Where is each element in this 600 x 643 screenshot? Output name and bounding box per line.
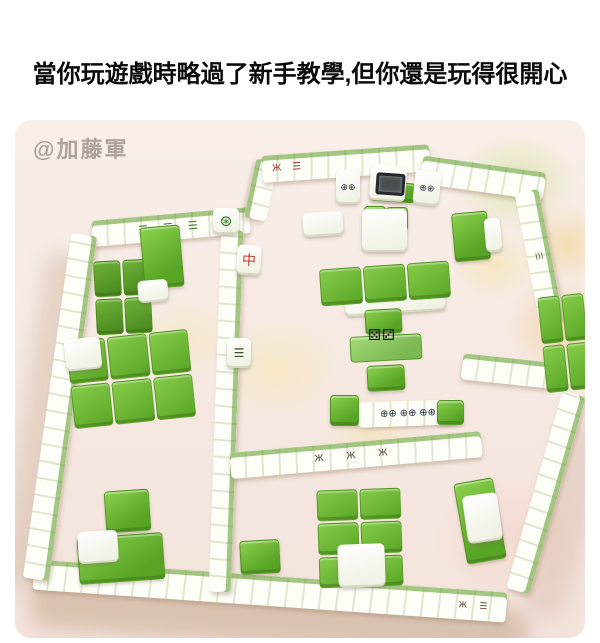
armchair-left-cushion — [137, 279, 169, 304]
watermark: @加藤軍 — [33, 132, 128, 164]
wall-mid-right — [461, 353, 553, 388]
dot-tile-left-icon: ⊕⊕ — [336, 170, 360, 204]
dice-glyphs: ⚄⚂ — [368, 327, 396, 344]
green-tile — [93, 260, 122, 297]
green-tile — [148, 329, 192, 376]
loveseat-base — [362, 209, 407, 252]
armchair-right-arm — [484, 217, 503, 252]
nightstand-top — [462, 492, 503, 544]
side-table-small — [104, 488, 152, 533]
tv-screen-icon — [375, 172, 405, 196]
stool — [239, 539, 281, 575]
tv-tile — [369, 164, 407, 202]
counter-right-end — [437, 400, 464, 425]
wall-center-divider — [209, 230, 244, 593]
bamboo-tile-icon: ☰ — [227, 338, 251, 368]
meme-post: 當你玩遊戲時略過了新手教學,但你還是玩得很開心 @加藤軍 ☰ ☰ ☰ Ж ☰ ☰ — [0, 0, 600, 643]
green-tile — [70, 382, 114, 429]
bamboo-glyph: ☰ — [234, 346, 245, 360]
side-table — [302, 211, 344, 238]
green-tile — [407, 261, 451, 301]
wall-bedrooms-top: Ж Ж Ж — [229, 431, 482, 479]
dot-pair-glyph: ⊕⊕ — [419, 182, 435, 195]
green-tile — [153, 374, 197, 421]
counter-left-end — [330, 395, 359, 426]
bed-small-pillow — [337, 543, 385, 588]
green-tile — [95, 298, 124, 335]
green-tile — [112, 378, 156, 425]
dining-chair — [366, 364, 405, 392]
green-tile — [316, 489, 358, 522]
red-center-glyph: 中 — [241, 250, 256, 271]
dot-pair-glyph: ⊕⊕ — [340, 182, 355, 193]
green-tile — [363, 264, 407, 304]
bench-cushion — [77, 530, 119, 565]
flower-glyph: ⊛ — [220, 212, 233, 230]
green-tile — [319, 267, 363, 307]
dice-icon: ⚄⚂ — [368, 326, 396, 344]
green-tile — [359, 488, 401, 521]
green-tile — [107, 333, 151, 380]
dot-tile-right-icon: ⊕⊕ — [412, 170, 441, 207]
mahjong-floorplan-scene: ☰ ☰ ☰ Ж ☰ ☰ Ж ☰ Ж Ж Ж — [15, 120, 585, 638]
red-center-tile-icon: 中 — [236, 244, 262, 275]
character-suit-tiles-icon: Ж Ж Ж — [229, 431, 482, 479]
green-tile — [566, 342, 585, 391]
meme-caption: 當你玩遊戲時略過了新手教學,但你還是玩得很開心 — [0, 54, 600, 89]
green-tile — [561, 293, 585, 342]
bed-large-pillow — [63, 336, 102, 372]
green-tile — [537, 295, 564, 344]
flower-tile-icon: ⊛ — [213, 208, 239, 234]
photo: @加藤軍 ☰ ☰ ☰ Ж ☰ ☰ — [15, 120, 585, 638]
green-tile — [542, 344, 569, 393]
